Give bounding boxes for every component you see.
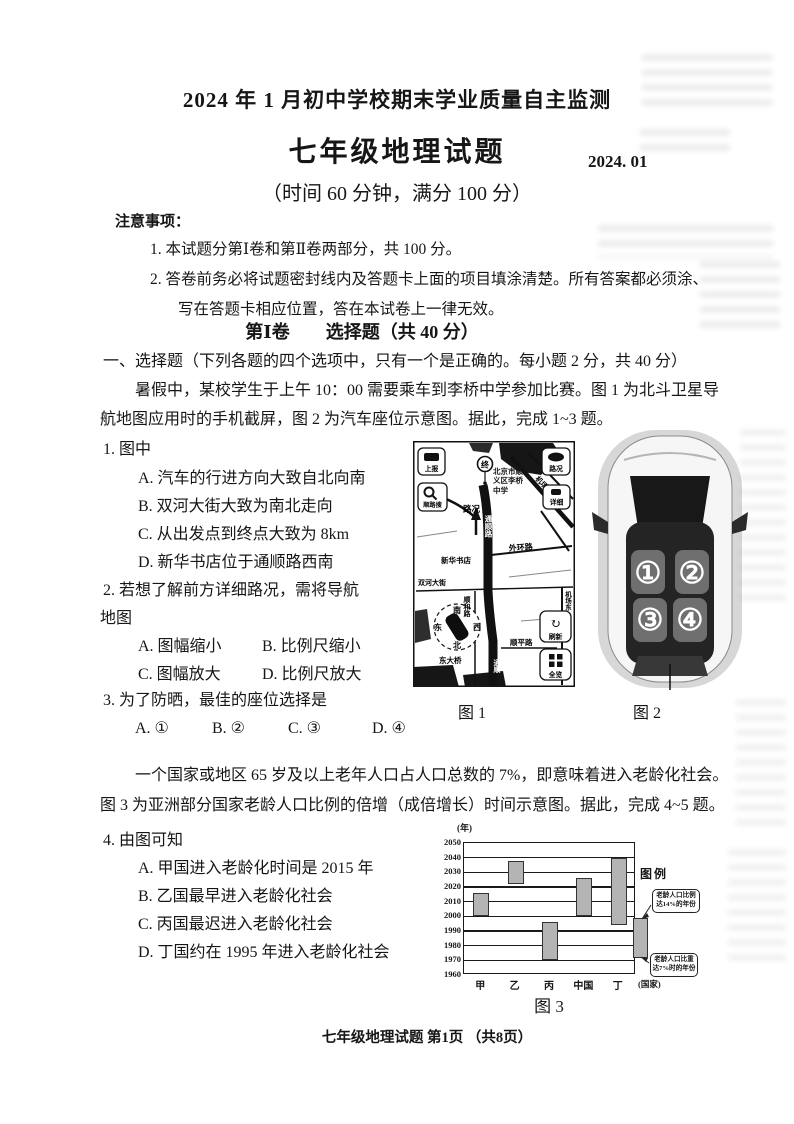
report-icon xyxy=(424,453,439,461)
section1-heading: 第Ⅰ卷 选择题（共 40 分） xyxy=(0,322,794,344)
part1-intro: 一、选择题（下列各题的四个选项中，只有一个是正确的。每小题 2 分，共 40 分… xyxy=(103,352,687,371)
bookstore-label: 新华书店 xyxy=(441,555,471,565)
page-footer: 七年级地理试题 第1页 （共8页） xyxy=(0,1030,794,1047)
refresh-icon: ↻ xyxy=(550,616,561,631)
figure3: (年) (国家) 图例 老龄人口比例达14%的年份 老龄人口比重达7%时的年份 … xyxy=(443,821,743,1017)
svg-text:全览: 全览 xyxy=(548,670,563,679)
figure1-caption: 图 1 xyxy=(458,699,486,723)
q2-option-b: B. 比例尺缩小 xyxy=(262,637,361,656)
road-shuanghe-label: 双河大街 xyxy=(418,578,446,587)
road-shunhe-label: 顺和路 xyxy=(463,595,472,618)
detail-button: 详细 xyxy=(543,485,570,509)
x-tick-label-中国: 中国 xyxy=(566,977,600,992)
figure3-legend-sample-bar xyxy=(633,918,648,958)
range-bar-中国 xyxy=(576,878,592,916)
range-bar-甲 xyxy=(473,893,489,916)
y-tick-label-2030: 2030 xyxy=(438,866,461,876)
notice-item-1: 1. 本试题分第Ⅰ卷和第Ⅱ卷两部分，共 100 分。 xyxy=(150,241,461,260)
x-tick-label-丙: 丙 xyxy=(532,977,566,992)
seat-3-label: ③ xyxy=(637,604,664,637)
compass-rose: 南 东 西 北 xyxy=(434,604,481,650)
svg-text:刷新: 刷新 xyxy=(549,632,563,641)
bleed-through-artifact xyxy=(736,700,786,830)
report-button: 上报 xyxy=(418,448,445,475)
subject-title: 七年级地理试题 xyxy=(0,136,794,170)
svg-text:上报: 上报 xyxy=(425,464,439,473)
y-tick-label-1990: 1990 xyxy=(438,925,461,935)
y-tick-label-2000: 2000 xyxy=(438,910,461,920)
exam-date: 2024. 01 xyxy=(588,152,648,172)
scanned-exam-page: { "page": { "title": "2024 年 1 月初中学校期末学业… xyxy=(0,0,794,1124)
figure3-caption: 图 3 xyxy=(463,992,635,1017)
figure3-xunit: (国家) xyxy=(638,978,661,990)
figure3-ylabel: (年) xyxy=(457,821,472,834)
q2-option-c: C. 图幅放大 xyxy=(138,665,221,684)
seat-2-label: ② xyxy=(679,557,706,590)
q4-stem: 4. 由图可知 xyxy=(103,831,183,850)
range-bar-丙 xyxy=(542,922,558,960)
q3-option-a: A. ① xyxy=(135,719,169,738)
q2-option-a: A. 图幅缩小 xyxy=(138,637,222,656)
destination-name-label: 北京市顺义区李桥中学 xyxy=(493,467,525,495)
windshield xyxy=(630,476,710,528)
road-tongshun-label: 通顺路 xyxy=(484,514,493,539)
road-tongshun-bottom-label: 通顺 xyxy=(493,658,502,674)
bridge-label: 东大桥 xyxy=(439,655,462,665)
x-tick-label-丁: 丁 xyxy=(601,977,635,992)
y-tick-label-1980: 1980 xyxy=(438,940,461,950)
y-tick-label-1960: 1960 xyxy=(438,969,461,979)
q3-option-c: C. ③ xyxy=(288,719,321,738)
q3-stem: 3. 为了防晒，最佳的座位选择是 xyxy=(103,691,327,710)
q4-option-b: B. 乙国最早进入老龄化社会 xyxy=(138,887,333,906)
figure2-caption: 图 2 xyxy=(633,699,661,723)
compass-north-label: 北 xyxy=(453,640,461,650)
road-waihuan-label: 外环路 xyxy=(508,541,534,553)
x-tick-label-甲: 甲 xyxy=(463,977,497,992)
svg-text:路况: 路况 xyxy=(549,464,563,473)
q4-option-c: C. 丙国最迟进入老龄化社会 xyxy=(138,915,333,934)
traffic-status-label: 路况 xyxy=(463,504,481,514)
q2-stem-line1: 2. 若想了解前方详细路况，需将导航 xyxy=(103,581,359,600)
notice-item-2-cont: 写在答题卡相应位置，答在本试卷上一律无效。 xyxy=(178,301,504,320)
passage2-line1: 一个国家或地区 65 岁及以上老年人口占人口总数的 7%，即意味着进入老龄化社会… xyxy=(135,766,728,785)
page-title: 2024 年 1 月初中学校期末学业质量自主监测 xyxy=(0,88,794,113)
passage2-line2: 图 3 为亚洲部分国家老龄人口比例的倍增（成倍增长）时间示意图。据此，完成 4~… xyxy=(100,796,725,815)
notice-item-2: 2. 答卷前务必将试题密封线内及答题卡上面的项目填涂清楚。所有答案都必须涂、 xyxy=(150,271,708,290)
notice-label: 注意事项： xyxy=(115,213,190,231)
detail-icon xyxy=(551,489,561,495)
passage1-line1: 暑假中，某校学生于上午 10：00 需要乘车到李桥中学参加比赛。图 1 为北斗卫… xyxy=(135,381,719,400)
figure3-plot xyxy=(463,842,635,974)
y-tick-label-1970: 1970 xyxy=(438,954,461,964)
y-tick-label-2010: 2010 xyxy=(438,896,461,906)
q2-stem-line2: 地图 xyxy=(100,609,132,628)
q1-option-a: A. 汽车的行进方向大致自北向南 xyxy=(138,469,366,488)
q1-option-c: C. 从出发点到终点大致为 8km xyxy=(138,525,349,544)
q1-option-d: D. 新华书店位于通顺路西南 xyxy=(138,553,334,572)
q2-option-d: D. 比例尺放大 xyxy=(262,665,362,684)
traffic-icon xyxy=(548,453,564,462)
svg-text:详细: 详细 xyxy=(550,498,564,507)
compass-south-label: 南 xyxy=(453,605,461,615)
compass-west-label: 西 xyxy=(473,623,481,632)
figure1-nav-map: 终 南 东 西 北 路况 通顺路 外环路 新华书店 双河大街 机场东路 机场东 … xyxy=(413,441,575,687)
route-search-button: 顺路搜 xyxy=(418,483,447,511)
gridline-2020 xyxy=(464,886,634,887)
destination-pin-label: 终 xyxy=(480,460,490,470)
q4-option-d: D. 丁国约在 1995 年进入老龄化社会 xyxy=(138,943,390,962)
figure3-callout-7pct: 老龄人口比重达7%时的年份 xyxy=(650,953,698,977)
y-tick-label-2050: 2050 xyxy=(438,837,461,847)
figure3-legend-title: 图例 xyxy=(640,865,668,882)
y-tick-label-2040: 2040 xyxy=(438,852,461,862)
road-shunping-label: 顺平路 xyxy=(510,637,533,647)
figure3-callout-14pct: 老龄人口比例达14%的年份 xyxy=(652,889,700,913)
x-tick-label-乙: 乙 xyxy=(497,977,531,992)
gridline-2000 xyxy=(464,916,634,917)
bleed-through-artifact xyxy=(598,226,773,258)
traffic-button: 路况 xyxy=(542,448,570,475)
figure2-car-seats: ① ② ③ ④ xyxy=(584,426,756,694)
compass-east-label: 东 xyxy=(434,622,442,632)
q1-option-b: B. 双河大街大致为南北走向 xyxy=(138,497,333,516)
y-tick-label-2020: 2020 xyxy=(438,881,461,891)
seat-4-label: ④ xyxy=(677,604,704,637)
overview-button: 全览 xyxy=(540,649,571,680)
gridline-2010 xyxy=(464,901,634,902)
exam-meta: （时间 60 分钟，满分 100 分） xyxy=(0,182,794,206)
seat-1-label: ① xyxy=(635,557,662,590)
q4-option-a: A. 甲国进入老龄化时间是 2015 年 xyxy=(138,859,374,878)
refresh-button: ↻ 刷新 xyxy=(540,611,571,642)
passage1-line2: 航地图应用时的手机截屏，图 2 为汽车座位示意图。据此，完成 1~3 题。 xyxy=(100,410,613,429)
q3-option-b: B. ② xyxy=(212,719,245,738)
range-bar-丁 xyxy=(611,858,627,925)
gridline-2030 xyxy=(464,872,634,873)
q1-stem: 1. 图中 xyxy=(103,440,151,459)
svg-text:顺路搜: 顺路搜 xyxy=(423,501,442,509)
range-bar-乙 xyxy=(508,861,524,884)
q3-option-d: D. ④ xyxy=(372,719,406,738)
gridline-2040 xyxy=(464,857,634,858)
